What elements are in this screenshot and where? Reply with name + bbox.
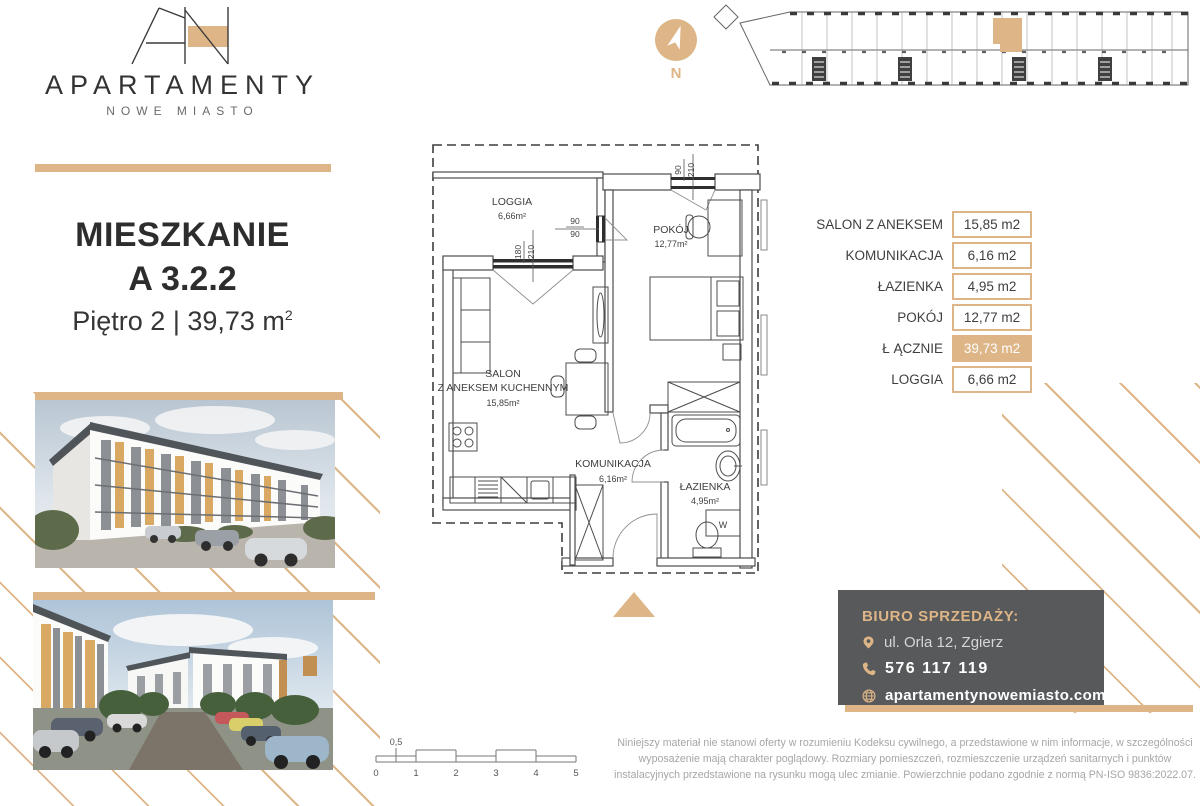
svg-text:90: 90 [570,216,580,226]
chair [575,416,596,429]
toilet [696,522,718,548]
globe-icon [862,689,876,703]
dining-table [566,363,608,415]
phone-row: 576 117 119 [862,660,1104,678]
building-photo-1 [35,400,335,568]
bed [650,277,743,340]
sofa [453,278,490,373]
highlighted-unit [993,18,1022,52]
brand-logo-monogram [126,4,238,68]
brand-subname: NOWE MIASTO [20,104,345,118]
photo1-gold-bar [35,392,343,400]
row-value-total: 39,73 m2 [952,335,1032,362]
nightstand [723,344,741,360]
contact-gold-underline [845,705,1193,712]
floor-plan: 90 210 90 90 180 210 [423,130,768,630]
phone-icon [862,662,876,676]
photo2-gold-bar [33,592,375,600]
scale-half-label: 0,5 [390,737,403,747]
svg-text:90: 90 [570,229,580,239]
flyer-page: APARTAMENTY NOWE MIASTO MIESZKANIE A 3.2… [0,0,1200,806]
floor-label: Piętro 2 [72,306,165,336]
room-area-komunikacja: 6,16m² [599,474,627,484]
table-row: ŁAZIENKA4,95 m2 [820,271,1032,302]
area-table: SALON Z ANEKSEM15,85 m2 KOMUNIKACJA6,16 … [820,209,1032,395]
area-superscript: 2 [285,307,293,323]
brand-name: APARTAMENTY [20,70,345,101]
chair [575,349,596,362]
row-label: ŁAZIENKA [878,279,943,294]
svg-text:210: 210 [526,245,536,259]
total-area: 39,73 m [187,306,285,336]
gold-divider [35,164,331,172]
address-text: ul. Orla 12, Zgierz [884,634,1003,651]
table-row: LOGGIA6,66 m2 [820,364,1032,395]
table-row: POKÓJ12,77 m2 [820,302,1032,333]
desk-chair [688,216,710,238]
scale-bar: 0,5 0 1 2 3 4 5 [368,736,584,784]
compass-icon: N [648,12,708,84]
address-row: ul. Orla 12, Zgierz [862,634,1104,651]
row-value: 12,77 m2 [952,304,1032,331]
compass-north-label: N [671,65,682,82]
location-pin-icon [862,635,875,650]
room-area-pokoj: 12,77m² [654,239,687,249]
scale-tick: 1 [413,768,418,779]
washer-label: W [719,520,728,530]
table-row-total: Ł ĄCZNIE39,73 m2 [820,333,1032,364]
building-overview-plan [712,2,1197,94]
entrance-arrow [613,592,655,617]
room-label-loggia: LOGGIA [492,196,532,208]
floor-and-area: Piętro 2 | 39,73 m2 [20,306,345,337]
svg-text:90: 90 [673,165,683,175]
kitchen-counter [449,423,576,503]
sales-office-box: BIURO SPRZEDAŻY: ul. Orla 12, Zgierz 576… [838,590,1104,705]
room-area-lazienka: 4,95m² [691,496,719,506]
pillow [717,311,739,336]
pillow [717,281,739,306]
legal-disclaimer: Niniejszy materiał nie stanowi oferty w … [614,736,1196,784]
room-label-lazienka: ŁAZIENKA [680,481,731,493]
row-label: KOMUNIKACJA [845,248,943,263]
room-area-loggia: 6,66m² [498,211,526,221]
row-label: LOGGIA [891,372,943,387]
table-row: KOMUNIKACJA6,16 m2 [820,240,1032,271]
website-row: apartamentynowemiasto.com [862,687,1104,704]
room-area-salon: 15,85m² [486,398,519,408]
building-photo-2 [33,600,333,770]
row-value: 6,16 m2 [952,242,1032,269]
scale-tick: 4 [533,768,538,779]
row-value: 6,66 m2 [952,366,1032,393]
row-label: SALON Z ANEKSEM [816,217,943,232]
row-value: 4,95 m2 [952,273,1032,300]
scale-tick: 3 [493,768,498,779]
table-row: SALON Z ANEKSEM15,85 m2 [820,209,1032,240]
scale-tick: 0 [373,768,378,779]
row-label: POKÓJ [897,310,943,325]
scale-tick: 5 [573,768,578,779]
logo-gold-band [188,26,228,47]
phone-text: 576 117 119 [885,660,989,678]
row-label: Ł ĄCZNIE [882,341,943,356]
room-label-komunikacja: KOMUNIKACJA [575,458,651,470]
dimension-window-loggia: 90 90 [566,216,584,239]
kitchen-sink [531,481,549,499]
room-label-pokoj: POKÓJ [653,223,689,236]
desk [708,200,742,256]
apartment-title: MIESZKANIE [20,216,345,255]
separator: | [165,306,187,336]
sales-office-heading: BIURO SPRZEDAŻY: [862,608,1104,625]
website-text: apartamentynowemiasto.com [885,687,1106,704]
apartment-number: A 3.2.2 [20,260,345,299]
scale-tick: 2 [453,768,458,779]
svg-text:210: 210 [686,163,696,177]
svg-text:180: 180 [513,245,523,259]
row-value: 15,85 m2 [952,211,1032,238]
room-label-salon: SALON [485,368,521,380]
room-label-salon-2: Z ANEKSEM KUCHENNYM [438,382,569,394]
